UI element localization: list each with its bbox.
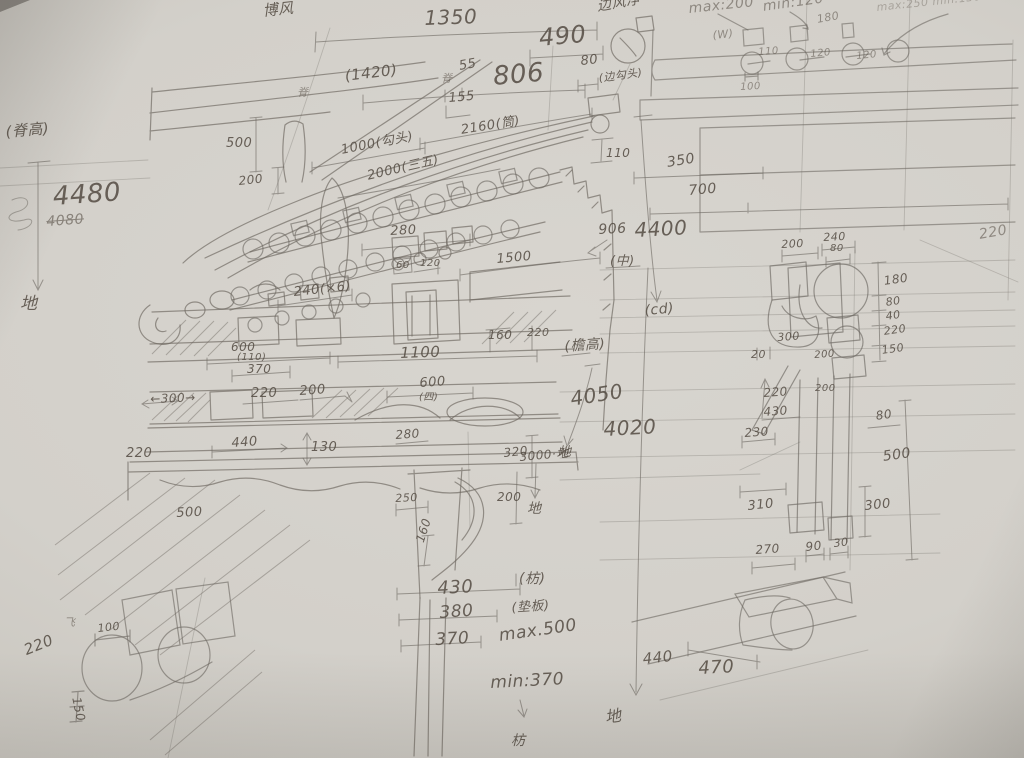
dim-180-d: 180 (883, 272, 909, 287)
label-bianfengjing: 边风净 (596, 0, 641, 14)
dim-max-500: max.500 (498, 617, 578, 645)
dim-160-small: 160 (488, 329, 512, 341)
dim-max250-min130: max:250 min:130 (876, 0, 982, 13)
dim-490: 490 (538, 22, 587, 50)
dim-1350: 1350 (424, 6, 478, 28)
dim-700: 700 (688, 182, 717, 198)
dim-350: 350 (666, 152, 696, 170)
label-ground-d: 地 (604, 708, 623, 726)
dim-120-plan-a: 120 (810, 48, 831, 60)
dim-220-e: 220 (763, 385, 788, 399)
label-jigao: (脊高) (5, 121, 50, 140)
dim-160-rot: 160 (414, 517, 433, 544)
char-fei: 飞 (64, 617, 76, 628)
dim-906: 906 (598, 222, 627, 237)
label-fang: (枋) (519, 572, 545, 586)
sketch-photo: 博风1350边风净max:200min:120max:250 min:13049… (0, 0, 1024, 758)
dim-90-d: 90 (805, 539, 822, 553)
dim-250: 250 (395, 492, 418, 504)
dim-110-plan: 110 (758, 47, 779, 58)
label-si-mark: (四) (419, 393, 438, 403)
label-cd: (cd) (644, 301, 675, 318)
dim-1500: 1500 (496, 250, 532, 266)
dim-240-d: 240 (823, 231, 846, 243)
dim-2000: 2000(三五) (366, 154, 440, 183)
dim-150-bl: 150 (70, 696, 87, 722)
dim-4050: 4050 (569, 381, 624, 409)
dim-110-ibar: 110 (606, 147, 630, 159)
dim-270-d: 270 (755, 542, 780, 556)
dim-300-d: 300 (777, 330, 800, 343)
dim-370-a: 370 (247, 363, 271, 375)
dim-60-small: 60 (396, 261, 410, 271)
dim-120-small: 120 (420, 259, 441, 269)
dim-300-e: 300 (864, 497, 892, 513)
dim-100-plan: 100 (740, 82, 761, 93)
dim-280-a: 280 (390, 224, 417, 238)
dim-200-v: 200 (238, 172, 264, 186)
dim-806: 806 (492, 60, 545, 90)
label-ground-e: 地 (558, 446, 572, 459)
dim-1000-goutou: 1000(勾头) (340, 130, 414, 157)
dim-min-120: min:120 (762, 0, 825, 14)
dim-4080-struck: 4080 (46, 212, 85, 229)
dim-220-small: 220 (527, 327, 550, 338)
dim-240x6: 240(×6) (293, 280, 352, 299)
dim-20-d: 20 (751, 349, 766, 360)
dim-310-d: 310 (747, 497, 775, 513)
label-yangao: (檐高) (564, 337, 606, 354)
dim-4480: 4480 (52, 179, 122, 210)
dim-200-e: 200 (814, 350, 835, 361)
dim-500-d: 500 (882, 446, 912, 464)
label-fang-bottom: 枋 (511, 734, 526, 748)
label-center-mark: (中) (610, 255, 635, 268)
dim-220-bl: 220 (22, 633, 56, 658)
label-bofeng: 博风 (262, 1, 294, 19)
dim-230-d: 230 (744, 425, 769, 439)
label-dianban: (垫板) (511, 599, 550, 615)
dim-500-left: 500 (176, 506, 203, 520)
dim-30-d: 30 (833, 536, 849, 549)
label-ground-a: 地 (20, 296, 38, 313)
dim-130: 130 (311, 441, 337, 454)
dim-370-col: 370 (435, 630, 470, 649)
dim-380-col: 380 (439, 603, 474, 622)
dim-55: 55 (458, 57, 478, 73)
dim-600-b: 600 (419, 375, 446, 390)
label-w-mark: (W) (712, 28, 734, 41)
dim-200-b: 200 (299, 383, 326, 398)
dim-120-plan-b: 120 (856, 50, 877, 62)
label-ground-c: 地 (527, 502, 542, 516)
dim-300-arrows: ←300→ (150, 391, 196, 405)
label-bian-goutou: (边勾头) (598, 67, 643, 84)
dim-280-b: 280 (395, 427, 420, 441)
dim-220-d: 220 (883, 323, 907, 337)
char-ji-b: 脊 (441, 73, 453, 84)
dim-100-bl: 100 (97, 621, 121, 634)
dim-470-b: 470 (698, 658, 735, 678)
dim-440: 440 (231, 435, 258, 450)
dim-220-b: 220 (251, 387, 277, 400)
dim-max-200: max:200 (688, 0, 755, 16)
dim-80-top: 80 (580, 53, 599, 68)
dim-200-d: 200 (781, 238, 804, 250)
dim-80-e: 80 (885, 295, 901, 308)
char-ji-a: 脊 (297, 87, 309, 98)
dim-min-370: min:370 (490, 671, 565, 692)
dim-500-v: 500 (226, 137, 252, 150)
dim-1100: 1100 (400, 345, 441, 361)
dim-40-d: 40 (885, 309, 901, 322)
dim-220-left: 220 (126, 447, 152, 460)
dim-430-col: 430 (437, 578, 474, 598)
dim-430-d: 430 (763, 404, 788, 418)
dim-2160-tong: 2160(筒) (460, 115, 521, 137)
dim-4400: 4400 (634, 217, 688, 240)
dim-4020: 4020 (603, 416, 657, 439)
dim-200-f: 200 (815, 384, 836, 394)
dim-80-f: 80 (875, 408, 893, 422)
dim-155: 155 (448, 90, 475, 105)
dim-220-far-right: 220 (978, 223, 1008, 242)
dim-1420: (1420) (344, 63, 398, 84)
dim-180-top: 180 (816, 10, 840, 25)
dim-440-b: 440 (642, 649, 674, 667)
dim-200-c: 200 (497, 491, 521, 503)
labels-layer: 博风1350边风净max:200min:120max:250 min:13049… (0, 0, 1024, 758)
dim-80-d: 80 (830, 244, 844, 254)
dim-150-d: 150 (881, 342, 905, 356)
